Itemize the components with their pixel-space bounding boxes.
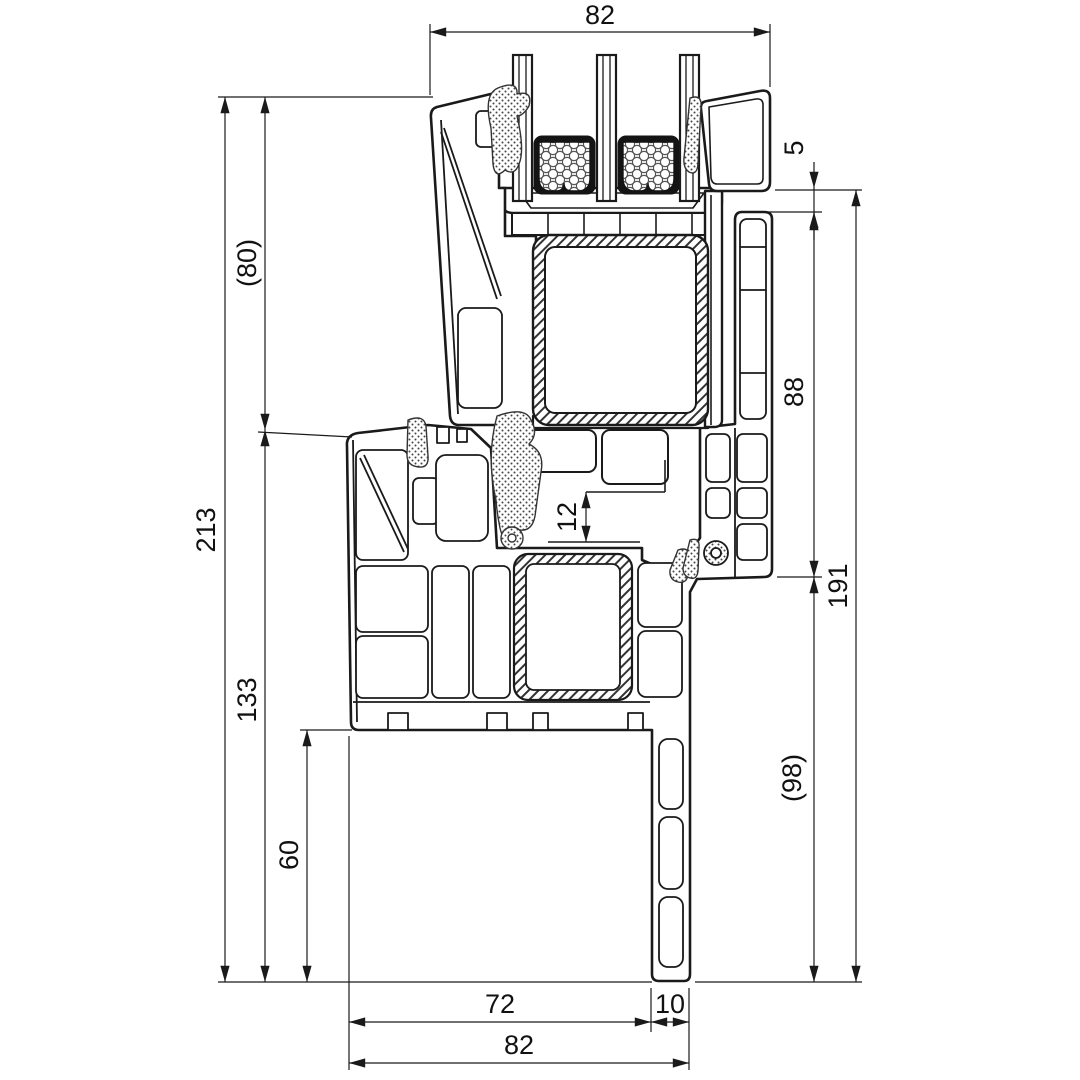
dim-bottom-width-extension: 10 <box>655 989 685 1019</box>
dim-left-height-lower: 133 <box>232 677 262 722</box>
dim-bottom-width-total: 82 <box>504 1030 534 1060</box>
dim-left-height-sill: 60 <box>274 840 304 870</box>
frame-reinforcement <box>514 554 632 700</box>
dim-left-height-total: 213 <box>191 507 221 552</box>
dim-right-height-lower: (98) <box>777 754 807 802</box>
dim-groove-depth: 12 <box>552 502 582 532</box>
dim-right-height-upper: 88 <box>779 377 809 407</box>
sash-reinforcement <box>533 235 708 425</box>
dim-left-height-upper: (80) <box>232 239 262 287</box>
spacer-honeycomb <box>623 142 674 191</box>
dim-bottom-width-frame: 72 <box>485 989 515 1019</box>
hardware-roller <box>704 541 728 565</box>
dim-top-width: 82 <box>585 0 615 30</box>
seal-mid-left <box>407 418 428 467</box>
window-profile-cross-section: 82 (80) 213 133 60 5 88 191 (98) 12 72 1… <box>0 0 1080 1080</box>
spacer-honeycomb <box>539 142 590 191</box>
dim-right-height-total: 191 <box>823 563 853 608</box>
dim-right-gap: 5 <box>779 140 809 155</box>
technical-drawing-page: 82 (80) 213 133 60 5 88 191 (98) 12 72 1… <box>0 0 1080 1080</box>
seal-center-gasket <box>491 412 542 540</box>
